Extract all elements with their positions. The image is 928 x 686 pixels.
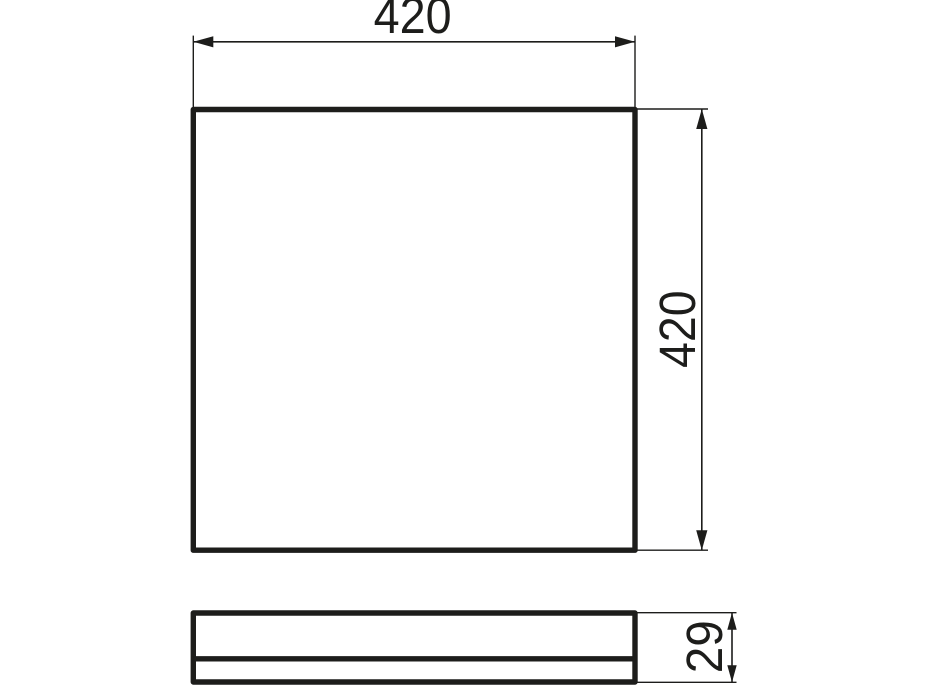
svg-text:420: 420 bbox=[649, 290, 706, 368]
svg-text:29: 29 bbox=[676, 620, 733, 673]
svg-text:420: 420 bbox=[374, 0, 452, 44]
